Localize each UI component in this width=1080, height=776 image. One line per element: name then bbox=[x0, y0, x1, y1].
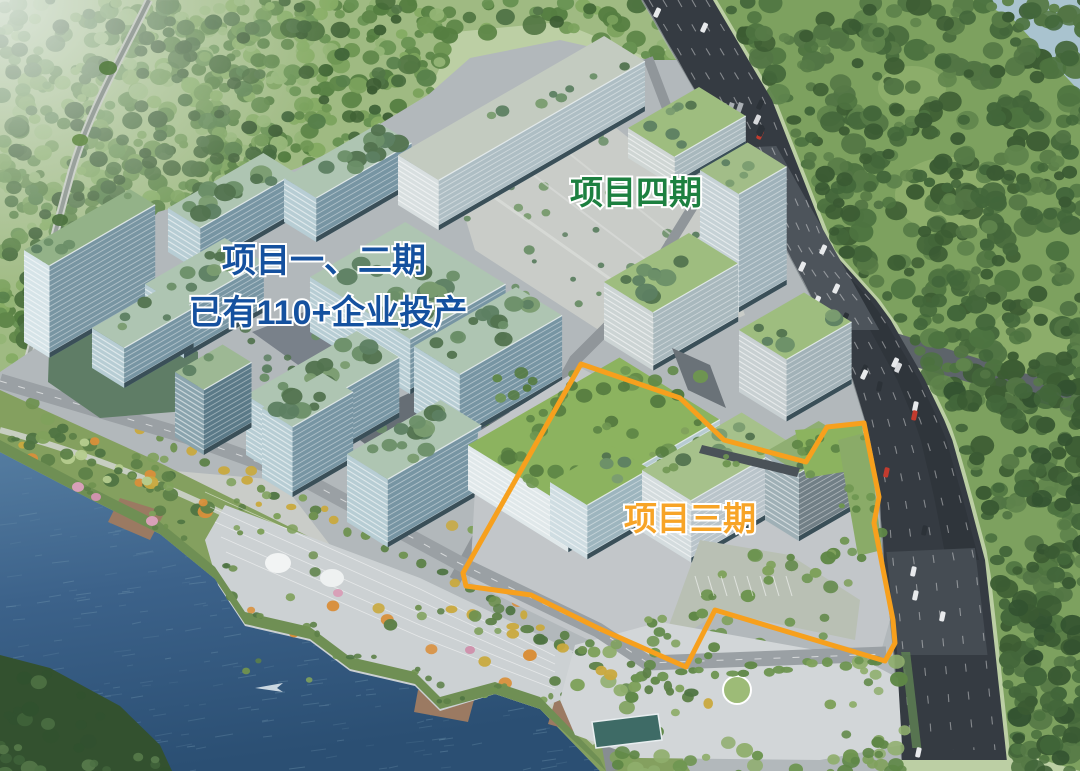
svg-text:项目三期: 项目三期 bbox=[624, 500, 756, 537]
svg-text:已有110+企业投产: 已有110+企业投产 bbox=[189, 293, 468, 332]
svg-text:项目一、二期: 项目一、二期 bbox=[222, 242, 426, 280]
svg-text:项目四期: 项目四期 bbox=[570, 174, 702, 211]
